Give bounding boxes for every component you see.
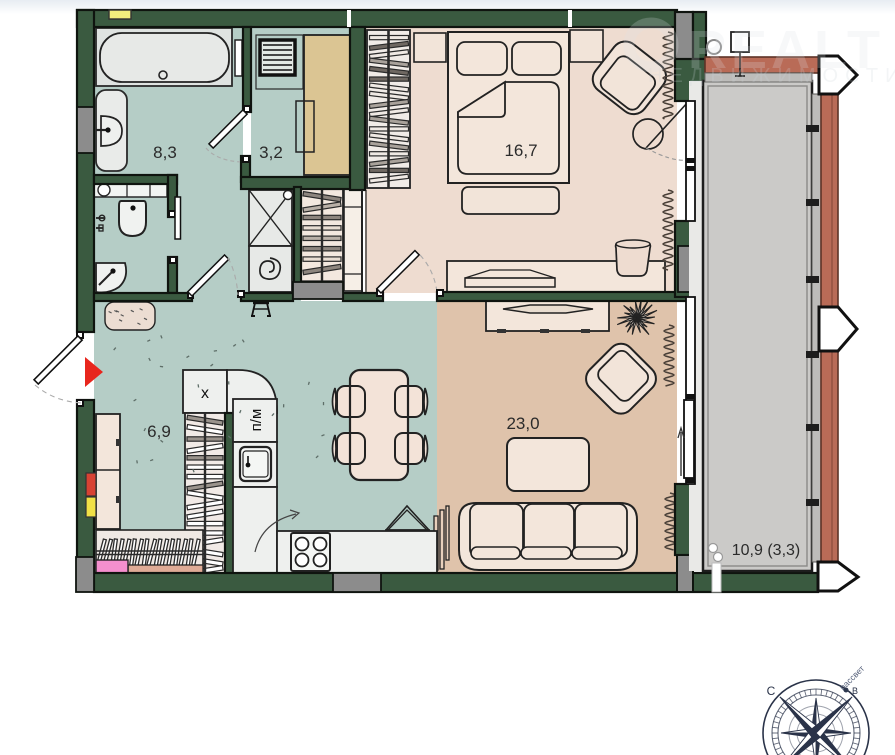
svg-text:10,9 (3,3): 10,9 (3,3) (732, 542, 800, 559)
svg-text:8,3: 8,3 (153, 143, 177, 162)
svg-text:В: В (852, 686, 858, 696)
svg-text:С: С (767, 684, 776, 698)
svg-text:16,7: 16,7 (504, 141, 537, 160)
svg-text:НЕДВИЖИМОСТИ: НЕДВИЖИМОСТИ (648, 65, 895, 87)
svg-text:23,0: 23,0 (506, 414, 539, 433)
svg-text:п/м: п/м (248, 409, 265, 432)
svg-text:3,2: 3,2 (259, 143, 283, 162)
svg-text:6,9: 6,9 (147, 422, 171, 441)
svg-text:х: х (201, 385, 209, 402)
